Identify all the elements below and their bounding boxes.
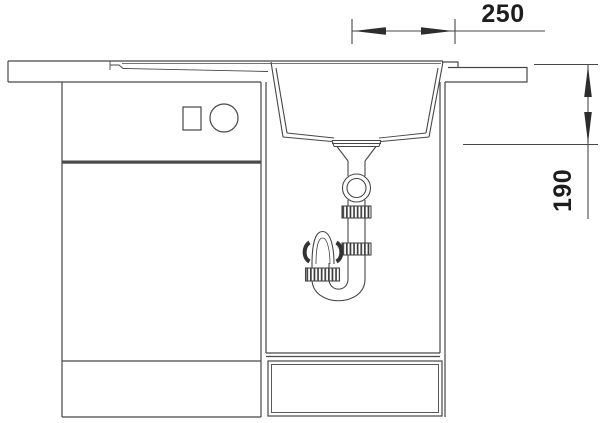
dim190-arrow-up (584, 66, 592, 97)
sink-bowl (271, 62, 443, 142)
dim250-label: 250 (481, 0, 524, 28)
sink-rim-right-cap (442, 62, 458, 68)
compression-nut-1 (342, 206, 371, 218)
elbow-dome-inner (316, 238, 330, 264)
dim190-arrow-down (584, 112, 592, 143)
drain-trap (305, 141, 381, 301)
compression-nut-2 (342, 243, 371, 255)
ball-joint-inner (347, 179, 366, 198)
drawing-canvas: 250 190 (0, 0, 600, 423)
pipe-segment-3 (348, 255, 365, 279)
sink-installation-drawing: 250 190 (0, 0, 600, 423)
appliance-indicator-rectangle (183, 107, 201, 130)
bowl-bottom-inner (287, 133, 426, 138)
dimension-vertical-190: 190 (463, 65, 598, 220)
dim250-arrow-right (421, 27, 453, 35)
sink-flange-joint (110, 61, 123, 70)
appliance-knob-circle (210, 104, 238, 132)
elbow-ear-right (337, 243, 342, 262)
dimension-horizontal-250: 250 (352, 0, 545, 44)
drain-flange (332, 141, 381, 147)
dim190-label: 190 (549, 169, 577, 212)
elbow-dome-outer (312, 232, 334, 265)
appliance-panel-divider (62, 161, 261, 164)
countertop-right-slab (445, 68, 527, 83)
drawer-front-inner (272, 365, 439, 413)
drain-funnel (337, 147, 376, 162)
drawer-front-outer (268, 361, 442, 416)
drainboard-surface (123, 69, 268, 72)
elbow-ear-left (305, 243, 310, 262)
appliance-panel (183, 104, 238, 132)
dim250-arrow-left (354, 27, 386, 35)
countertop (8, 61, 527, 82)
u-bend-outer (312, 279, 365, 301)
cabinet (62, 82, 445, 417)
pipe-segment-2 (348, 218, 365, 243)
bowl-wall-right-outer (429, 62, 443, 137)
compression-nut-3 (306, 268, 340, 281)
